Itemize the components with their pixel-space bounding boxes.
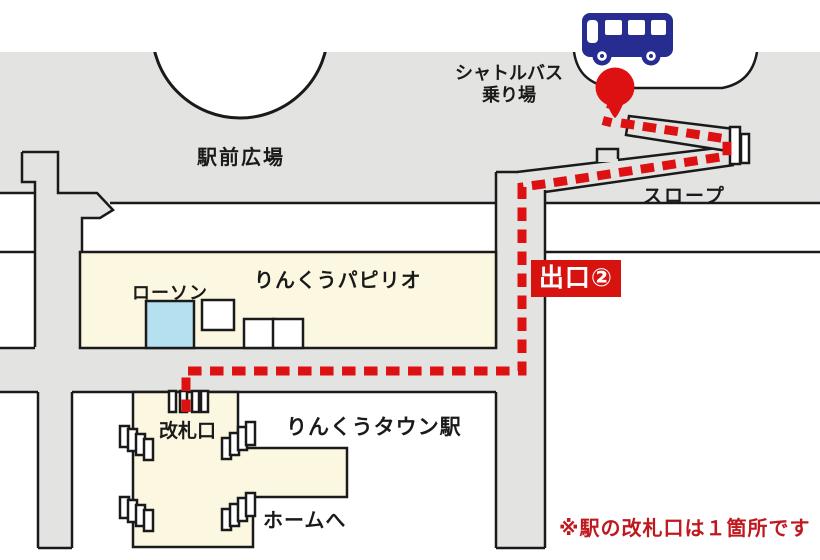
papilio-unit-3 xyxy=(273,319,303,348)
station-access-map: 駅前広場 シャトルバス 乗り場 スロープ 出口② りんくうパピリオ ローソン 改… xyxy=(0,0,820,560)
left-road-outline-left xyxy=(22,152,35,347)
exit-2-badge: 出口② xyxy=(531,260,621,297)
shuttle-bus-stop-label-line1: シャトルバス xyxy=(446,62,572,84)
top-margin xyxy=(0,0,820,52)
gate-note-text: ※駅の改札口は１箇所です xyxy=(559,512,810,541)
to-platform-label: ホームへ xyxy=(263,504,346,533)
lawson-label: ローソン xyxy=(132,279,208,305)
shuttle-bus-stop-label-line2: 乗り場 xyxy=(446,84,572,106)
shuttle-bus-stop-label: シャトルバス 乗り場 xyxy=(446,62,572,106)
slope-landing-end xyxy=(741,134,749,163)
papilio-unit-2 xyxy=(244,319,274,348)
slope-notch xyxy=(597,149,618,162)
exit-corridor xyxy=(496,172,545,548)
left-road-lower xyxy=(38,392,72,548)
station-name-label: りんくうタウン駅 xyxy=(286,411,462,441)
lawson-store xyxy=(146,301,194,348)
ticket-gate-label: 改札口 xyxy=(159,416,216,443)
papilio-building-label: りんくうパピリオ xyxy=(254,264,422,293)
plaza-label: 駅前広場 xyxy=(197,141,285,170)
slope-label: スロープ xyxy=(643,181,726,208)
